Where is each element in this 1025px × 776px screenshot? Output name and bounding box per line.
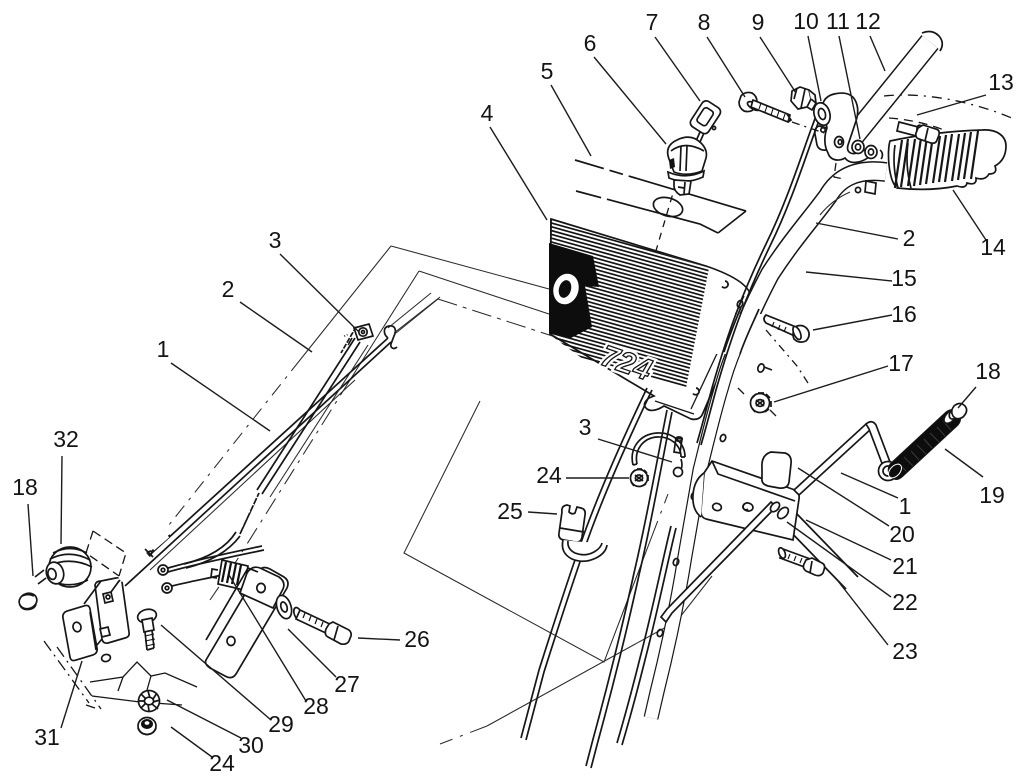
svg-text:29: 29 [268, 711, 294, 737]
svg-text:3: 3 [579, 414, 592, 440]
svg-text:20: 20 [889, 521, 915, 547]
svg-text:17: 17 [888, 350, 914, 376]
svg-text:31: 31 [34, 724, 60, 750]
svg-text:28: 28 [303, 693, 329, 719]
svg-text:1: 1 [899, 493, 912, 519]
svg-text:6: 6 [584, 30, 597, 56]
svg-text:32: 32 [53, 426, 79, 452]
svg-text:22: 22 [892, 589, 918, 615]
svg-text:24: 24 [536, 462, 562, 488]
svg-text:12: 12 [855, 8, 881, 34]
svg-text:15: 15 [891, 265, 917, 291]
svg-text:27: 27 [334, 671, 360, 697]
svg-text:30: 30 [238, 732, 264, 758]
svg-text:18: 18 [975, 358, 1001, 384]
svg-text:5: 5 [541, 58, 554, 84]
svg-text:13: 13 [988, 69, 1014, 95]
svg-text:3: 3 [269, 227, 282, 253]
svg-text:4: 4 [481, 100, 494, 126]
svg-text:9: 9 [752, 9, 765, 35]
svg-text:18: 18 [12, 474, 38, 500]
svg-text:2: 2 [903, 225, 916, 251]
svg-text:23: 23 [892, 638, 918, 664]
svg-text:16: 16 [891, 301, 917, 327]
svg-text:8: 8 [698, 9, 711, 35]
svg-text:19: 19 [979, 482, 1005, 508]
svg-text:1: 1 [157, 336, 170, 362]
svg-text:10: 10 [793, 8, 819, 34]
svg-text:21: 21 [892, 553, 918, 579]
svg-text:7: 7 [646, 9, 659, 35]
svg-text:26: 26 [404, 626, 430, 652]
svg-text:11: 11 [826, 8, 850, 34]
svg-text:2: 2 [222, 276, 235, 302]
svg-text:24: 24 [209, 750, 235, 776]
svg-text:25: 25 [497, 498, 523, 524]
